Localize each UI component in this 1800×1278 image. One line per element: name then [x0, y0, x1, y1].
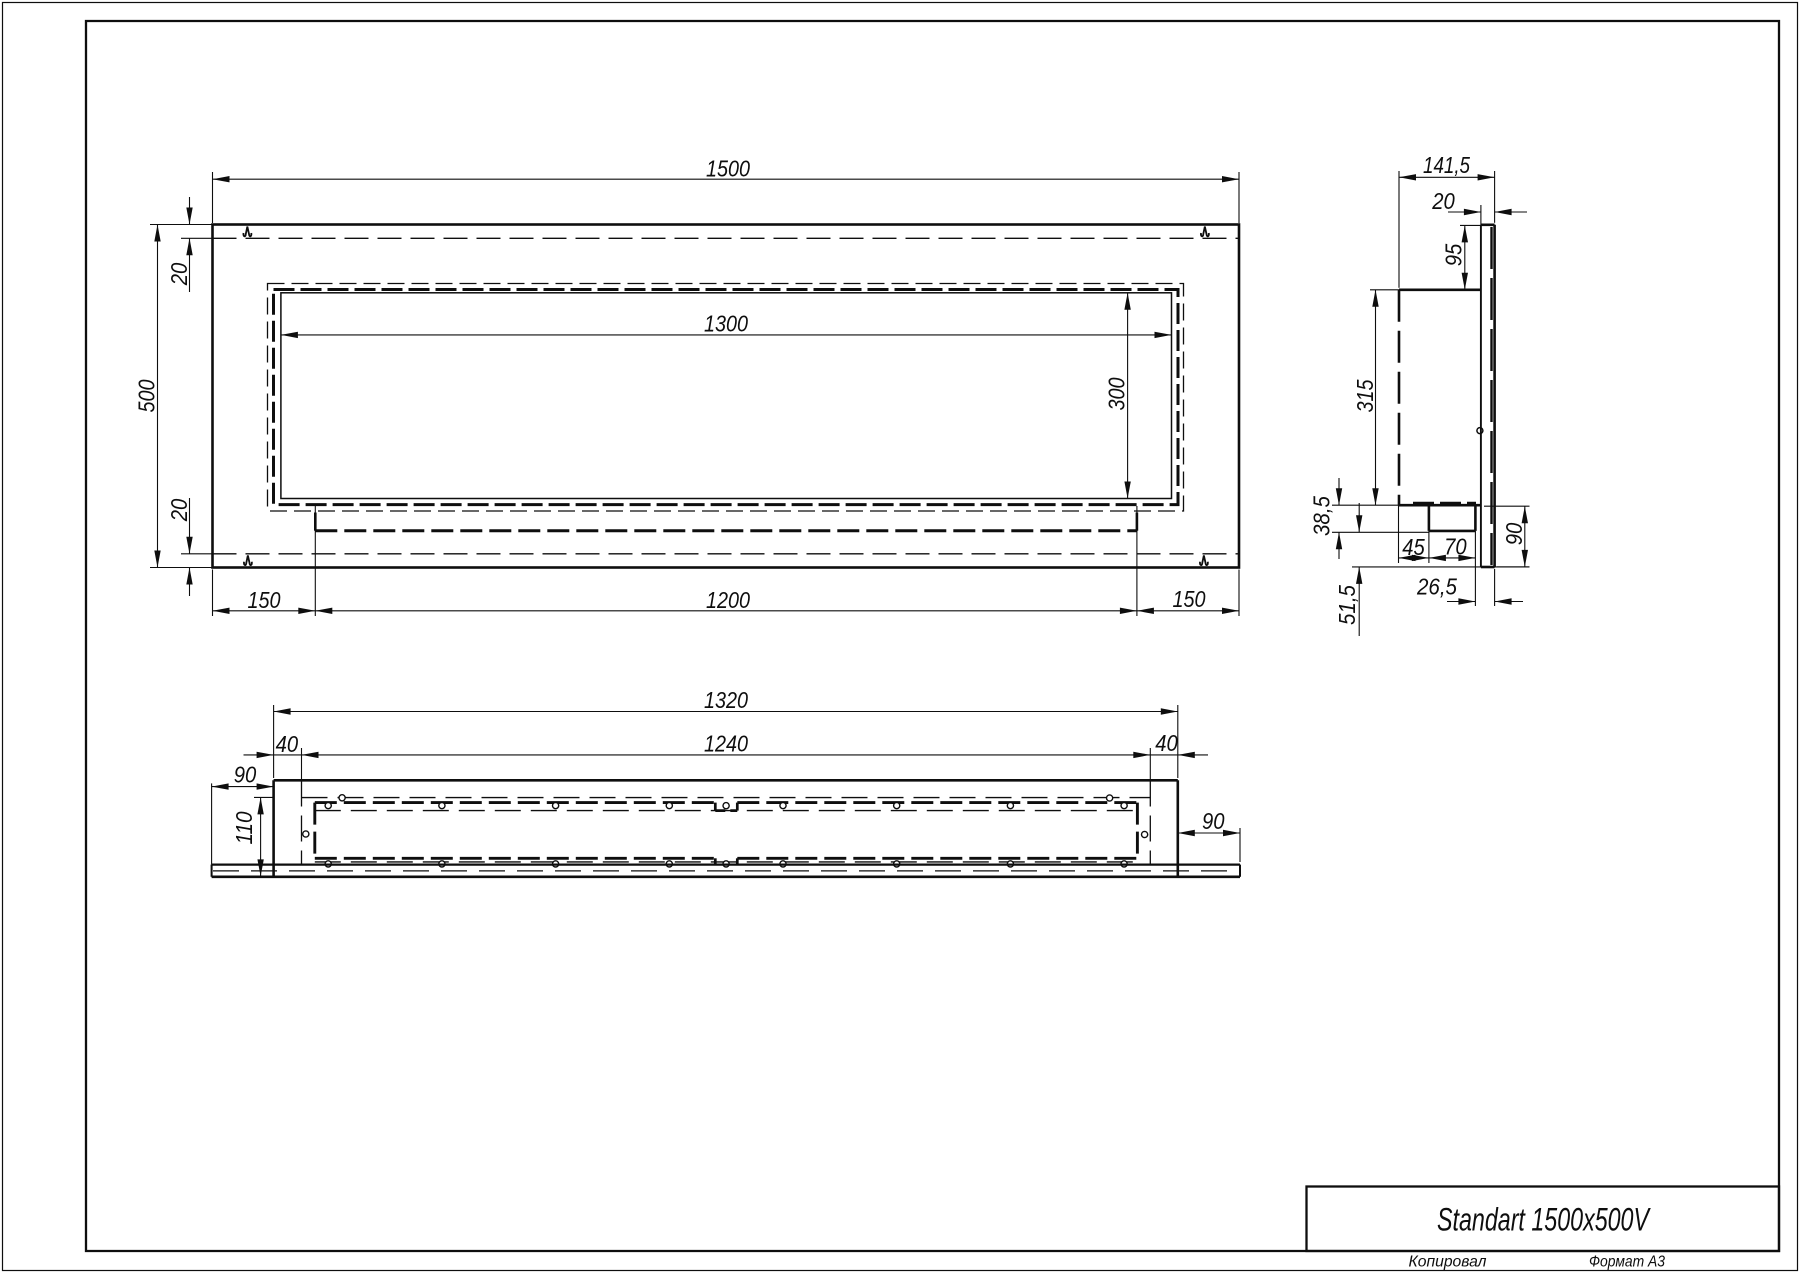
svg-text:110: 110 — [231, 812, 257, 845]
svg-text:90: 90 — [1501, 523, 1527, 546]
svg-text:1500: 1500 — [706, 156, 750, 182]
svg-text:Копировал: Копировал — [1409, 1254, 1487, 1271]
svg-text:45: 45 — [1402, 534, 1425, 560]
svg-text:150: 150 — [248, 587, 281, 613]
svg-text:1300: 1300 — [704, 311, 748, 337]
svg-text:26,5: 26,5 — [1416, 574, 1458, 600]
svg-text:20: 20 — [1431, 188, 1454, 214]
svg-text:90: 90 — [1202, 808, 1225, 834]
svg-text:141,5: 141,5 — [1423, 152, 1471, 178]
svg-text:315: 315 — [1352, 379, 1378, 413]
svg-text:150: 150 — [1173, 586, 1206, 612]
svg-text:300: 300 — [1103, 378, 1129, 411]
svg-text:51,5: 51,5 — [1334, 584, 1360, 625]
svg-text:20: 20 — [166, 263, 192, 286]
svg-text:1320: 1320 — [704, 687, 748, 713]
svg-text:1240: 1240 — [704, 731, 748, 757]
svg-text:70: 70 — [1444, 534, 1467, 560]
svg-text:40: 40 — [1155, 730, 1178, 756]
svg-text:1200: 1200 — [706, 587, 750, 613]
svg-text:500: 500 — [134, 380, 160, 413]
svg-text:38,5: 38,5 — [1309, 495, 1335, 536]
svg-text:Формат А3: Формат А3 — [1589, 1254, 1665, 1271]
svg-text:Standart 1500x500V: Standart 1500x500V — [1437, 1202, 1651, 1238]
svg-text:95: 95 — [1441, 243, 1467, 266]
svg-text:40: 40 — [276, 731, 299, 757]
svg-text:20: 20 — [166, 499, 192, 522]
svg-text:90: 90 — [234, 761, 257, 787]
